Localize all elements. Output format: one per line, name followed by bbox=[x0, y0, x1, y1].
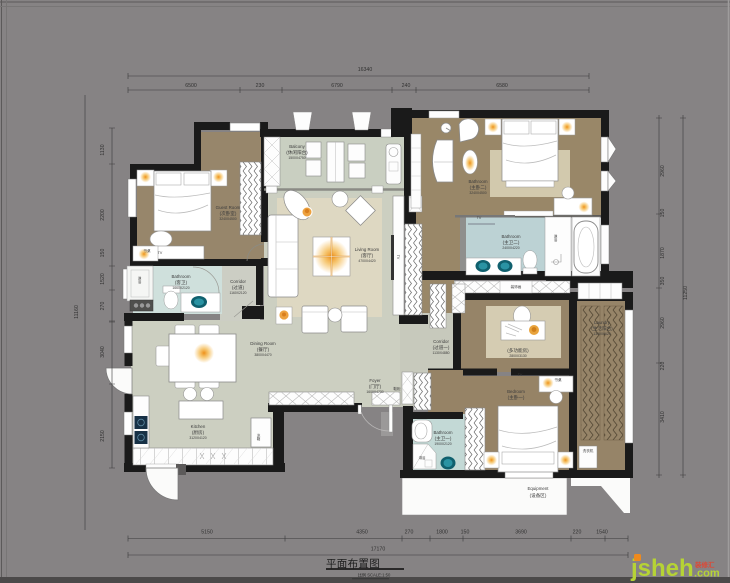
svg-text:2200: 2200 bbox=[100, 209, 106, 221]
svg-text:150: 150 bbox=[100, 249, 106, 258]
svg-text:Bathroom: Bathroom bbox=[433, 430, 452, 435]
svg-text:270: 270 bbox=[100, 302, 106, 311]
svg-text:220: 220 bbox=[660, 362, 666, 371]
svg-text:Bathroom: Bathroom bbox=[171, 274, 190, 279]
svg-text:(餐厅): (餐厅) bbox=[257, 346, 270, 353]
svg-text:Laundry: Laundry bbox=[594, 320, 611, 325]
svg-text:1660X2120: 1660X2120 bbox=[172, 286, 189, 290]
svg-text:(生活阳台): (生活阳台) bbox=[591, 325, 613, 332]
svg-text:Balcony: Balcony bbox=[289, 144, 305, 149]
svg-text:6500: 6500 bbox=[185, 83, 197, 89]
svg-text:2400X4220: 2400X4220 bbox=[502, 246, 519, 250]
svg-text:1520: 1520 bbox=[100, 273, 106, 285]
svg-text:6580: 6580 bbox=[496, 83, 508, 89]
svg-text:5150: 5150 bbox=[201, 530, 213, 536]
svg-text:比例 SCALE:1:50: 比例 SCALE:1:50 bbox=[358, 572, 391, 579]
svg-text:150: 150 bbox=[660, 209, 666, 218]
svg-text:3240X4500: 3240X4500 bbox=[469, 191, 486, 195]
svg-text:淋浴: 淋浴 bbox=[553, 234, 558, 243]
svg-text:1130: 1130 bbox=[100, 144, 106, 155]
svg-text:Equipment: Equipment bbox=[528, 486, 550, 491]
svg-text:书桌: 书桌 bbox=[143, 248, 151, 253]
svg-text:220: 220 bbox=[573, 530, 582, 536]
svg-text:3690: 3690 bbox=[515, 530, 527, 536]
svg-text:.com: .com bbox=[694, 568, 720, 580]
svg-text:Dining Room: Dining Room bbox=[250, 341, 276, 346]
svg-text:3040: 3040 bbox=[100, 346, 106, 358]
svg-text:1500X4750: 1500X4750 bbox=[288, 156, 305, 160]
svg-text:(次卧室): (次卧室) bbox=[220, 210, 237, 217]
svg-text:2150: 2150 bbox=[100, 430, 106, 442]
svg-text:TV: TV bbox=[518, 373, 523, 377]
svg-text:17170: 17170 bbox=[371, 547, 386, 553]
svg-text:270: 270 bbox=[405, 530, 414, 536]
svg-text:1160X2120: 1160X2120 bbox=[229, 291, 246, 295]
svg-text:3240X4500: 3240X4500 bbox=[219, 217, 236, 221]
svg-text:洗衣机: 洗衣机 bbox=[583, 448, 594, 453]
svg-text:淋浴: 淋浴 bbox=[137, 276, 142, 285]
svg-text:鞋柜: 鞋柜 bbox=[393, 386, 401, 391]
svg-text:1870: 1870 bbox=[660, 247, 666, 259]
svg-text:Bedroom: Bedroom bbox=[507, 389, 525, 394]
svg-text:Kitchen: Kitchen bbox=[191, 424, 206, 429]
svg-text:2960: 2960 bbox=[660, 317, 666, 329]
svg-text:(客卫): (客卫) bbox=[175, 279, 188, 286]
svg-text:(主卫一): (主卫一) bbox=[435, 435, 452, 441]
svg-text:Bathroom: Bathroom bbox=[501, 234, 520, 239]
svg-text:4700X4420: 4700X4420 bbox=[358, 259, 375, 263]
svg-text:Corridor: Corridor bbox=[230, 279, 246, 284]
svg-text:1800: 1800 bbox=[436, 530, 448, 536]
svg-text:1900X2120: 1900X2120 bbox=[434, 442, 451, 446]
svg-text:1300X6620: 1300X6620 bbox=[593, 332, 610, 336]
svg-text:Living Room: Living Room bbox=[355, 247, 380, 252]
svg-text:16340: 16340 bbox=[358, 67, 373, 73]
svg-text:3800X4470: 3800X4470 bbox=[254, 353, 271, 357]
svg-text:2960: 2960 bbox=[660, 165, 666, 177]
svg-text:Corridor: Corridor bbox=[433, 339, 449, 344]
svg-text:书桌: 书桌 bbox=[554, 377, 562, 382]
svg-text:(休闲阳台): (休闲阳台) bbox=[286, 149, 308, 156]
svg-text:6790: 6790 bbox=[331, 83, 343, 89]
svg-text:Guest Room: Guest Room bbox=[216, 205, 241, 210]
svg-text:(主卫二): (主卫二) bbox=[503, 239, 520, 245]
svg-text:3410: 3410 bbox=[660, 411, 666, 423]
svg-text:(客厅): (客厅) bbox=[361, 252, 374, 259]
svg-text:(过道): (过道) bbox=[232, 284, 245, 291]
svg-text:150: 150 bbox=[461, 530, 470, 536]
svg-text:Bathroom: Bathroom bbox=[468, 179, 487, 184]
svg-text:11250: 11250 bbox=[683, 286, 689, 300]
svg-text:3120X4120: 3120X4120 bbox=[189, 436, 206, 440]
svg-text:(厨房): (厨房) bbox=[192, 429, 205, 436]
svg-text:(主卧二): (主卧二) bbox=[470, 184, 487, 191]
svg-text:Foyer: Foyer bbox=[369, 378, 381, 383]
svg-text:TV: TV bbox=[158, 251, 163, 255]
svg-text:(过道一): (过道一) bbox=[433, 344, 450, 351]
svg-text:(门厅): (门厅) bbox=[369, 383, 382, 390]
svg-text:淋浴: 淋浴 bbox=[419, 455, 426, 460]
svg-text:TV: TV bbox=[396, 255, 400, 260]
svg-text:装修汇: 装修汇 bbox=[694, 560, 715, 569]
svg-text:11160: 11160 bbox=[74, 305, 80, 319]
svg-text:(多功能房): (多功能房) bbox=[507, 347, 529, 354]
svg-text:装饰画: 装饰画 bbox=[511, 284, 522, 289]
svg-text:TV: TV bbox=[477, 216, 482, 220]
svg-text:240: 240 bbox=[402, 83, 411, 89]
svg-text:2800X3130: 2800X3130 bbox=[509, 354, 526, 358]
svg-text:1600X4730: 1600X4730 bbox=[366, 390, 383, 394]
svg-text:230: 230 bbox=[256, 83, 265, 89]
svg-text:350: 350 bbox=[660, 277, 666, 286]
svg-text:1130X4880: 1130X4880 bbox=[432, 351, 449, 355]
svg-text:(主卧一): (主卧一) bbox=[508, 394, 525, 401]
svg-text:冰箱: 冰箱 bbox=[256, 433, 261, 442]
svg-text:4350: 4350 bbox=[356, 530, 368, 536]
svg-text:1540: 1540 bbox=[596, 530, 608, 536]
svg-text:(设备区): (设备区) bbox=[530, 492, 547, 499]
